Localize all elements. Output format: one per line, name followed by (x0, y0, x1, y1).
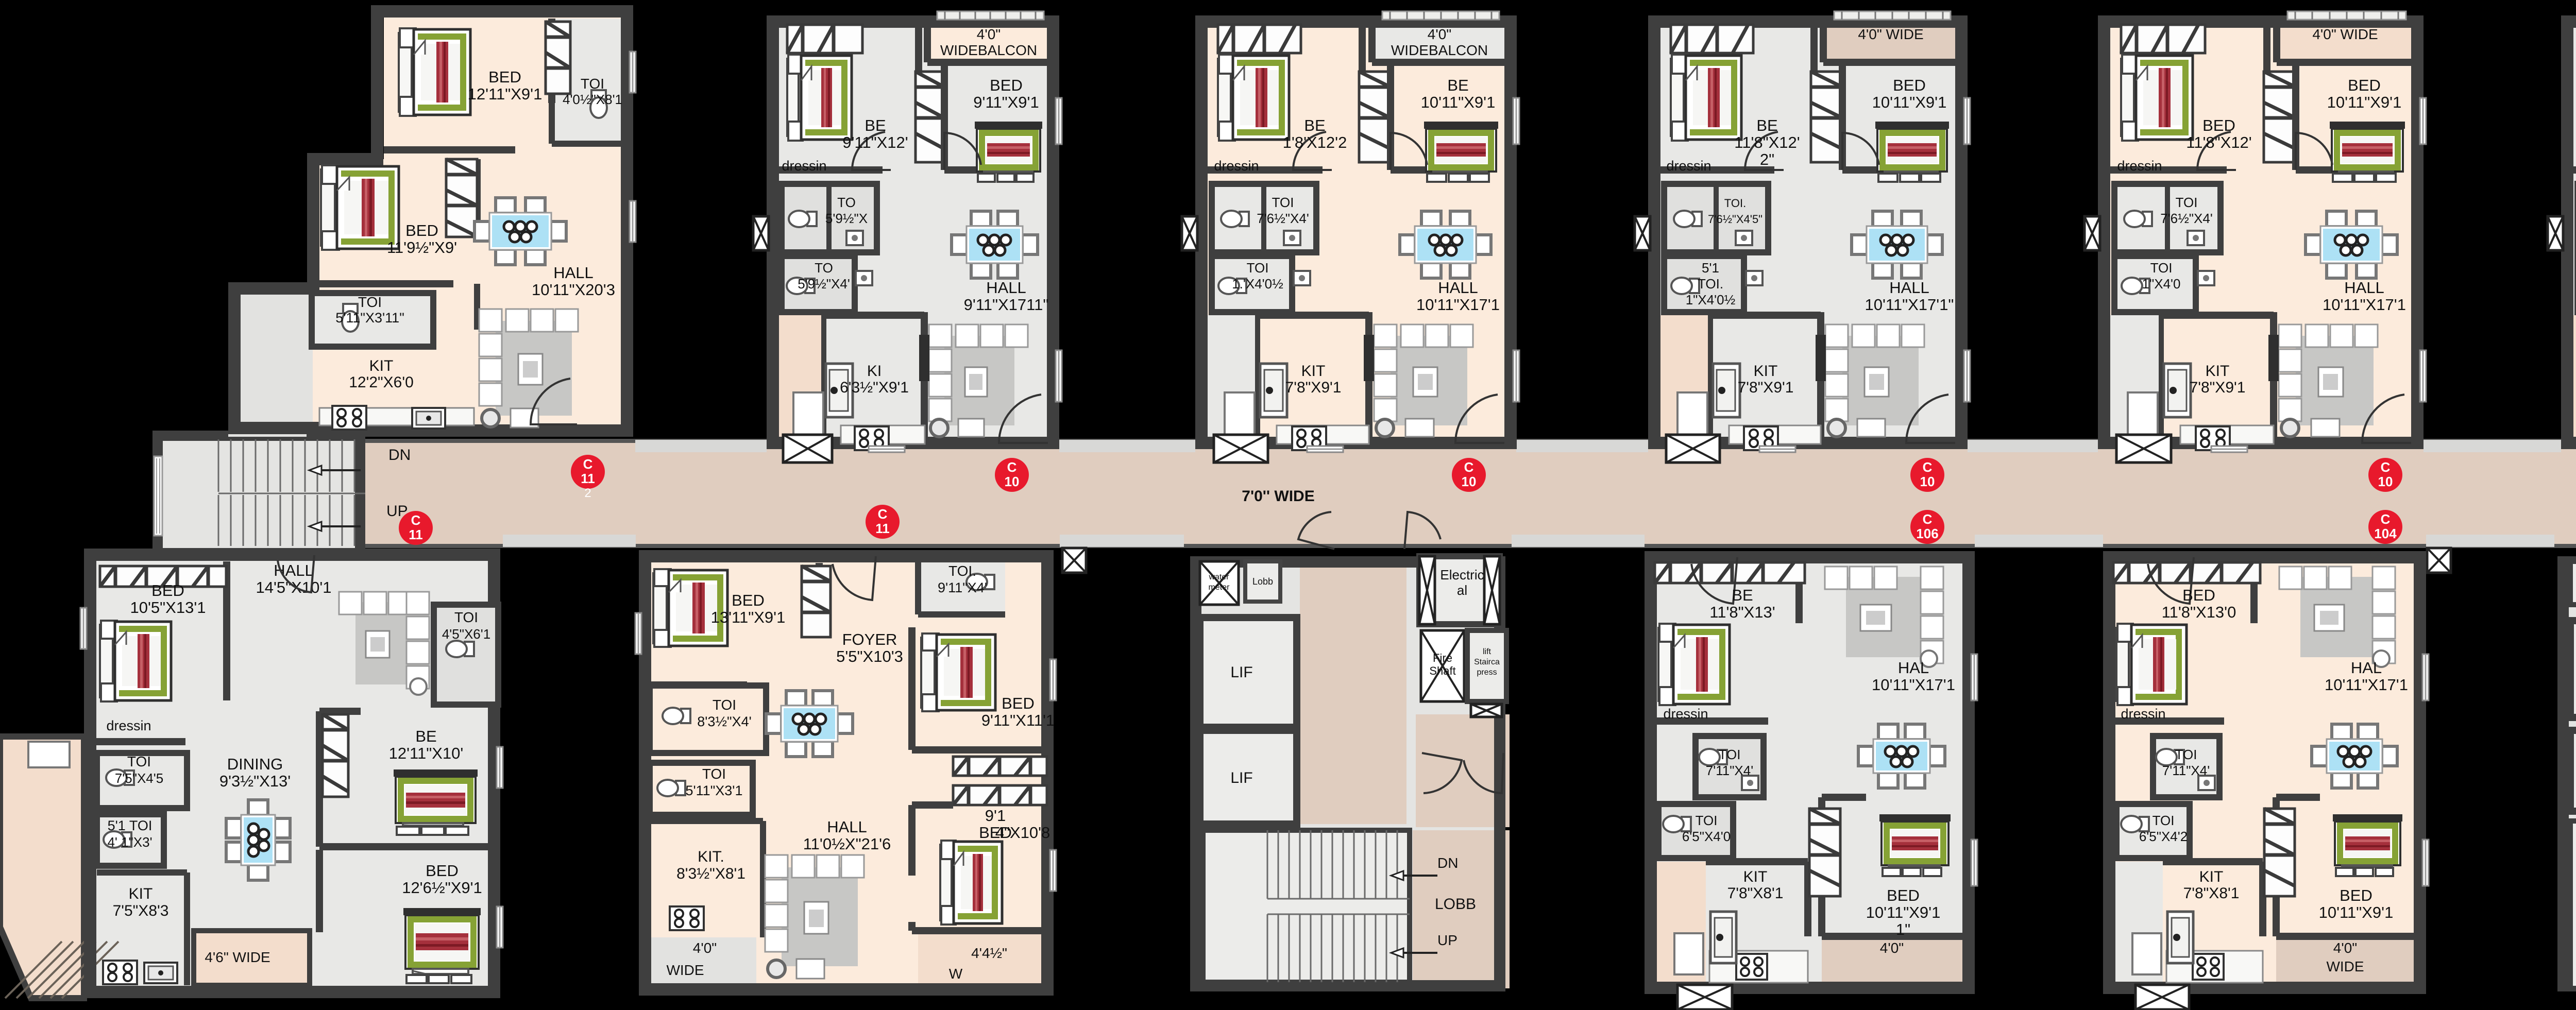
svg-text:TOI: TOI (1272, 195, 1294, 210)
svg-text:Electric: Electric (1440, 567, 1484, 583)
svg-text:TO: TO (815, 260, 833, 276)
svg-text:10'11"X17'1: 10'11"X17'1 (2323, 296, 2406, 314)
svg-text:C: C (2381, 511, 2391, 527)
svg-text:14'5"X10'1: 14'5"X10'1 (256, 578, 332, 596)
svg-text:5'1 TOI: 5'1 TOI (108, 818, 152, 833)
svg-text:Fire: Fire (1433, 652, 1452, 664)
svg-text:C: C (1464, 459, 1474, 475)
svg-text:BE: BE (1756, 116, 1777, 134)
svg-text:HALL: HALL (1438, 279, 1478, 297)
svg-text:7'5"X4'5: 7'5"X4'5 (115, 771, 163, 786)
svg-text:5'11"X3'11": 5'11"X3'11" (335, 310, 404, 326)
svg-text:TOI: TOI (454, 609, 478, 625)
svg-text:BED: BED (2202, 116, 2235, 134)
svg-text:TOI: TOI (2175, 747, 2197, 762)
svg-text:dressin: dressin (106, 718, 151, 733)
svg-text:TOI.: TOI. (1698, 276, 1723, 292)
svg-text:BED: BED (2340, 886, 2372, 904)
svg-text:KIT.: KIT. (698, 848, 724, 865)
svg-text:TOI: TOI (2153, 813, 2175, 828)
svg-text:10'11"X17'1": 10'11"X17'1" (1865, 296, 1954, 314)
svg-text:TOI: TOI (1247, 260, 1269, 276)
svg-text:BE: BE (1304, 116, 1325, 134)
svg-text:7'8"X9'1: 7'8"X9'1 (1738, 379, 1794, 396)
svg-text:C: C (2381, 459, 2391, 475)
svg-text:9'11"X11'1: 9'11"X11'1 (981, 711, 1055, 729)
svg-text:8'3½"X8'1: 8'3½"X8'1 (676, 865, 745, 882)
svg-text:4'0": 4'0" (1880, 940, 1904, 956)
svg-text:4'4½": 4'4½" (971, 945, 1007, 961)
svg-text:WIDEBALCON: WIDEBALCON (940, 42, 1037, 58)
svg-text:UP: UP (1437, 932, 1458, 948)
svg-text:dressin: dressin (1663, 706, 1708, 722)
svg-text:TOI: TOI (1696, 813, 1718, 828)
svg-text:KIT: KIT (1754, 363, 1778, 380)
svg-text:KIT: KIT (2206, 363, 2230, 380)
svg-text:BED: BED (151, 581, 184, 600)
svg-text:BED: BED (1893, 76, 1926, 94)
svg-text:4'0½"X8'1: 4'0½"X8'1 (563, 92, 622, 107)
svg-text:4'5"X6'1: 4'5"X6'1 (442, 626, 490, 642)
svg-text:12'2"X6'0: 12'2"X6'0 (349, 374, 414, 391)
svg-text:KI: KI (867, 363, 882, 380)
svg-text:104: 104 (2374, 526, 2397, 541)
svg-text:10'11"X17'1: 10'11"X17'1 (1416, 296, 1500, 314)
svg-text:10'5"X13'1: 10'5"X13'1 (130, 598, 206, 617)
svg-text:7'0'' WIDE: 7'0'' WIDE (1242, 488, 1314, 505)
svg-text:10'11"X17'1: 10'11"X17'1 (1872, 676, 1955, 694)
svg-text:12'11"X10': 12'11"X10' (389, 744, 464, 762)
svg-text:9'1: 9'1 (985, 807, 1006, 825)
svg-text:C: C (1007, 459, 1017, 475)
svg-text:7'8"X8'1: 7'8"X8'1 (2183, 885, 2240, 902)
svg-text:dressin: dressin (1214, 158, 1259, 174)
svg-text:106: 106 (1916, 526, 1938, 541)
svg-text:DN: DN (1437, 855, 1458, 871)
svg-text:dressin: dressin (782, 158, 826, 174)
svg-text:W: W (949, 966, 963, 982)
svg-text:BE: BE (1732, 586, 1753, 604)
svg-text:LOBB: LOBB (1435, 896, 1476, 913)
svg-text:6'3½"X9'1: 6'3½"X9'1 (840, 379, 909, 396)
svg-text:BED: BED (2348, 76, 2381, 94)
svg-text:BE: BE (865, 116, 886, 134)
svg-text:4'0": 4'0" (693, 940, 717, 956)
svg-text:KIT: KIT (129, 885, 153, 902)
svg-text:7'8"X9'1: 7'8"X9'1 (1285, 379, 1342, 396)
svg-text:4'0" WIDE: 4'0" WIDE (2312, 26, 2378, 42)
svg-text:LIF: LIF (1230, 664, 1252, 681)
svg-text:4' 1"X3': 4' 1"X3' (107, 834, 152, 850)
svg-text:HALL: HALL (827, 818, 867, 836)
svg-text:8'3½"X4': 8'3½"X4' (697, 714, 751, 729)
svg-text:BED: BED (732, 591, 765, 609)
svg-text:C: C (1923, 459, 1933, 475)
svg-text:BED: BED (405, 221, 438, 239)
svg-text:KIT: KIT (369, 357, 394, 374)
svg-text:11'8"X12': 11'8"X12' (1734, 133, 1800, 151)
svg-text:7'8"X8'1: 7'8"X8'1 (1727, 885, 1784, 902)
svg-text:BED: BED (426, 862, 459, 880)
svg-text:LIF: LIF (1230, 769, 1252, 786)
svg-text:10'11"X17'1: 10'11"X17'1 (2325, 676, 2408, 694)
svg-text:HALL: HALL (2344, 279, 2384, 297)
svg-text:9'3½"X13': 9'3½"X13' (219, 772, 291, 790)
svg-text:9'11"X9'1: 9'11"X9'1 (973, 93, 1039, 111)
svg-text:Shaft: Shaft (1429, 664, 1455, 677)
svg-text:7'6½"X4'5": 7'6½"X4'5" (1708, 213, 1762, 226)
svg-text:TOI.: TOI. (948, 563, 976, 579)
svg-text:1"X4'0: 1"X4'0 (2142, 276, 2181, 292)
svg-text:7'11"X4': 7'11"X4' (2162, 763, 2210, 778)
svg-text:2: 2 (584, 486, 591, 500)
svg-text:C: C (1923, 511, 1933, 527)
svg-text:4'0": 4'0" (2333, 940, 2357, 956)
svg-text:dressin: dressin (2121, 706, 2165, 722)
svg-text:5'9½"X4': 5'9½"X4' (798, 276, 850, 292)
svg-text:11'8"X13'0: 11'8"X13'0 (2162, 603, 2236, 621)
svg-text:5'9½"X: 5'9½"X (825, 211, 868, 226)
svg-text:13'11"X9'1: 13'11"X9'1 (711, 608, 786, 626)
svg-text:5'11"X3'1: 5'11"X3'1 (686, 783, 743, 798)
svg-text:dressin: dressin (1666, 158, 1711, 174)
svg-text:TOI: TOI (702, 766, 726, 782)
svg-text:1": 1" (1896, 920, 1910, 938)
svg-text:1"X4'0½: 1"X4'0½ (1686, 292, 1736, 307)
svg-text:HAL: HAL (2351, 659, 2382, 677)
svg-text:TOI: TOI (1719, 747, 1741, 762)
svg-text:10: 10 (1462, 474, 1477, 489)
svg-text:water: water (1208, 573, 1229, 581)
svg-text:BED: BED (1002, 694, 1035, 712)
svg-text:DINING: DINING (227, 755, 283, 773)
svg-text:WIDEBALCON: WIDEBALCON (1391, 42, 1488, 58)
svg-text:BED: BED (2182, 586, 2215, 604)
svg-text:10: 10 (1920, 474, 1935, 489)
svg-text:Lobb: Lobb (1252, 576, 1273, 587)
svg-text:C: C (878, 506, 888, 522)
svg-text:BED: BED (1887, 886, 1920, 904)
svg-text:11: 11 (581, 471, 595, 486)
svg-text:KIT: KIT (2199, 868, 2224, 885)
svg-text:7'6½"X4': 7'6½"X4' (1257, 211, 1309, 226)
svg-text:1'8'X12'2: 1'8'X12'2 (1283, 133, 1347, 151)
svg-text:5'5"X10'3: 5'5"X10'3 (836, 647, 903, 665)
svg-text:7'6½"X4': 7'6½"X4' (2160, 211, 2213, 226)
svg-text:BED: BED (488, 68, 521, 86)
svg-text:9'11"X1711": 9'11"X1711" (964, 296, 1049, 314)
svg-text:KIT: KIT (1743, 868, 1768, 885)
svg-text:BE: BE (415, 727, 436, 745)
svg-text:BED: BED (990, 76, 1023, 94)
svg-text:10'11"X9'1: 10'11"X9'1 (2327, 93, 2402, 111)
svg-text:7'11"X4': 7'11"X4' (1706, 763, 1753, 778)
svg-text:11'0½X"21'6: 11'0½X"21'6 (803, 835, 891, 853)
svg-text:10'11"X9'1: 10'11"X9'1 (1421, 93, 1496, 111)
svg-text:Stairca: Stairca (1474, 658, 1500, 666)
svg-text:10'11"X9'1: 10'11"X9'1 (2319, 903, 2394, 921)
svg-text:TOI: TOI (713, 697, 736, 713)
svg-text:TOI.: TOI. (1724, 197, 1746, 210)
svg-text:WIDE: WIDE (2326, 958, 2364, 974)
svg-text:C: C (411, 512, 421, 528)
svg-text:11'8"X13': 11'8"X13' (1709, 603, 1775, 621)
svg-text:12'6½"X9'1: 12'6½"X9'1 (402, 879, 482, 897)
svg-text:DN: DN (388, 447, 411, 464)
svg-text:4'0" WIDE: 4'0" WIDE (1858, 26, 1923, 42)
svg-text:7'8"X9'1: 7'8"X9'1 (2190, 379, 2246, 396)
svg-text:11: 11 (409, 527, 423, 542)
svg-text:6'5"X4'0: 6'5"X4'0 (1682, 829, 1731, 844)
svg-text:meter: meter (1209, 583, 1230, 592)
svg-text:1.'X4'0½: 1.'X4'0½ (1232, 276, 1283, 292)
svg-text:10: 10 (2378, 474, 2393, 489)
svg-text:TOI: TOI (2150, 260, 2173, 276)
svg-text:7'5"X8'3: 7'5"X8'3 (113, 902, 169, 919)
svg-text:11'8"X12': 11'8"X12' (2186, 133, 2251, 151)
svg-text:10'11"X9'1: 10'11"X9'1 (1866, 903, 1941, 921)
svg-text:dressin: dressin (2117, 158, 2162, 174)
svg-text:4"X10'8: 4"X10'8 (995, 824, 1050, 842)
svg-text:10: 10 (1005, 474, 1020, 489)
svg-text:TOI: TOI (581, 76, 604, 92)
svg-text:5'1: 5'1 (1702, 260, 1719, 276)
svg-text:HALL: HALL (553, 264, 594, 282)
svg-text:10'11"X20'3: 10'11"X20'3 (532, 281, 615, 299)
svg-text:HALL: HALL (1889, 279, 1929, 297)
svg-text:al: al (1457, 583, 1467, 598)
svg-text:4'6" WIDE: 4'6" WIDE (205, 949, 270, 965)
svg-text:press: press (1477, 668, 1497, 677)
svg-text:TOI: TOI (127, 754, 151, 769)
svg-text:9'11"X12': 9'11"X12' (842, 133, 908, 151)
svg-text:WIDE: WIDE (666, 962, 704, 978)
svg-text:lift: lift (1483, 647, 1492, 656)
svg-text:2": 2" (1760, 150, 1774, 168)
svg-text:HALL: HALL (986, 279, 1026, 297)
svg-text:11'9½"X9': 11'9½"X9' (387, 238, 457, 256)
svg-text:TOI: TOI (2176, 195, 2198, 210)
svg-text:10'11"X9'1: 10'11"X9'1 (1872, 93, 1947, 111)
svg-text:4'0": 4'0" (1428, 26, 1451, 42)
svg-text:6'5"X4'2: 6'5"X4'2 (2139, 829, 2188, 844)
svg-text:11: 11 (875, 521, 890, 536)
svg-text:C: C (583, 456, 593, 472)
svg-text:TO: TO (837, 195, 856, 210)
svg-text:HAL: HAL (1898, 659, 1929, 677)
svg-text:KIT: KIT (1301, 363, 1326, 380)
svg-text:TOI: TOI (358, 294, 382, 310)
svg-text:9'11"X4': 9'11"X4' (938, 580, 987, 595)
svg-text:12'11"X9'1: 12'11"X9'1 (468, 85, 543, 103)
svg-text:4'0": 4'0" (977, 26, 1001, 42)
svg-text:FOYER: FOYER (842, 630, 897, 648)
svg-text:BE: BE (1447, 76, 1468, 94)
